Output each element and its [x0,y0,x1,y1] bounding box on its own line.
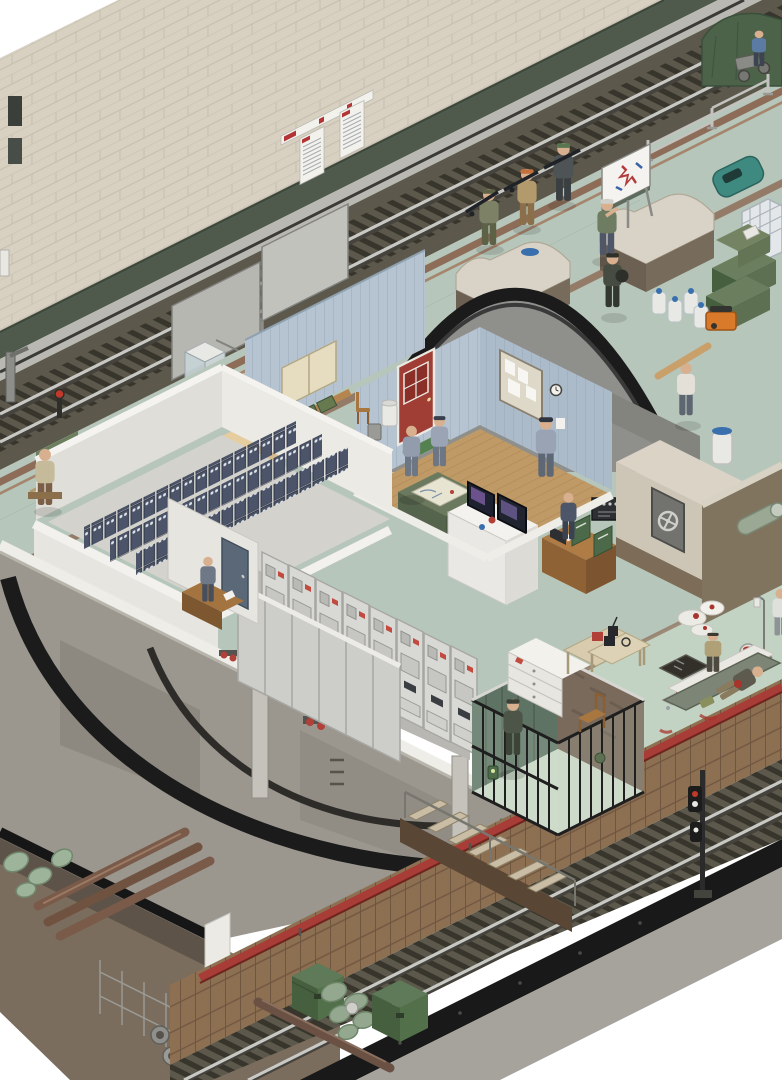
wound [734,680,742,688]
white-keg [382,404,397,426]
small-bench [28,492,62,499]
milk-can [712,427,732,464]
paper-in-hand [556,418,565,429]
cage-bucket [595,753,605,763]
illustration-stage: Isometric cutaway illustration of a metr… [0,0,782,1080]
isometric-metro-cutaway-illustration: Isometric cutaway illustration of a metr… [0,0,782,1080]
red-mug [489,517,496,524]
portable-generator [706,306,736,330]
backpack [616,270,629,283]
red-tool-box [592,632,603,641]
blue-bowl [521,248,539,256]
trash-bin [368,424,381,440]
blue-cup [479,524,485,530]
